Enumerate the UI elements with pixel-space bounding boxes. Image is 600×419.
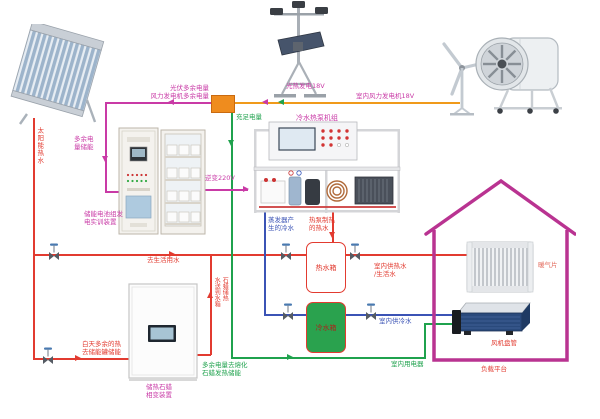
wind-source-fan (474, 28, 566, 118)
arrow-left-icon (262, 99, 268, 105)
wire-inverter-220v (204, 189, 248, 191)
label-indoor-cold-supply: 室内供冷水 (379, 318, 412, 326)
radiator (465, 240, 535, 299)
cold-water-tank-label: 冷水箱 (316, 323, 337, 333)
valve-icon (41, 347, 55, 365)
pipe-paraffin-to-tank (210, 254, 212, 355)
arrow-down-icon (329, 232, 335, 238)
label-fan-coil: 风机盘管 (491, 340, 517, 348)
label-to-domestic-water: 去生活用水 (147, 257, 180, 265)
valve-icon (348, 243, 362, 261)
arrow-right-icon (75, 355, 81, 361)
label-load-platform: 负载平台 (481, 366, 507, 374)
hot-water-tank-label: 热水箱 (316, 263, 337, 273)
label-solar-hot-water: 太阳能热水 (35, 127, 43, 165)
heat-pump-bench (251, 119, 403, 220)
arrow-left-icon (278, 99, 284, 105)
hot-water-tank: 热水箱 (306, 242, 346, 293)
label-day-surplus-heat: 白天多余的热 去储能罐储能 (82, 341, 121, 357)
paraffin-storage-cabinet (128, 283, 198, 386)
arrow-down-icon (228, 140, 234, 146)
arrow-right-icon (243, 186, 249, 192)
label-inverter-220v: 逆变220V (205, 175, 235, 183)
label-paraffin-cabinet: 储热石蜡 相变装置 (146, 384, 172, 400)
label-water-to-tank: 水送到水箱 (213, 277, 220, 307)
label-radiator: 暖气片 (538, 262, 558, 270)
label-heat-pump-unit: 冷水热泵机组 (296, 114, 338, 122)
label-sufficient-power: 充足电量 (236, 114, 262, 122)
valve-icon (281, 303, 295, 321)
label-indoor-hot-supply: 室内供热水 /生活水 (374, 263, 407, 279)
valve-icon (47, 243, 61, 261)
wire-surplus-to-storage-h (105, 102, 212, 104)
pipe-evaporator-cold-down (264, 212, 266, 316)
label-surplus-storage: 多余电 量储能 (74, 136, 94, 152)
battery-storage-cabinets (118, 124, 206, 244)
power-junction-box (211, 95, 235, 113)
label-battery-cabinet: 储能电池组发 电实训装置 (84, 211, 123, 227)
label-indoor-appliances: 室内用电器 (391, 361, 424, 369)
wire-sufficient-power-down (231, 111, 233, 359)
arrow-right-icon (287, 354, 293, 360)
cold-water-tank: 冷水箱 (306, 302, 346, 353)
label-evaporator-cold: 蒸发器产 生的冷水 (268, 217, 294, 233)
solar-collector (5, 24, 110, 130)
label-indoor-wind-gen: 室内风力发电机18V (356, 93, 414, 101)
fan-coil-unit (450, 297, 534, 345)
label-heatpump-hot: 热泵制热 的热水 (309, 217, 335, 233)
pipe-paraffin-outlet (196, 354, 211, 356)
label-surplus-power: 光伏多余电量 风力发电机多余电量 (147, 85, 209, 101)
arrow-down-icon (102, 156, 108, 162)
label-solar-thermal-gen: 光热发电18V (286, 83, 325, 91)
valve-icon (364, 303, 378, 321)
label-surplus-to-melt: 多余电量去熔化 石蜡发热储能 (202, 362, 248, 378)
system-schematic: 热水箱 冷水箱 太阳能热水 (0, 0, 600, 419)
label-paraffin-heat-store: 石蜡储热 (221, 277, 228, 301)
valve-icon (279, 243, 293, 261)
wire-indoor-appliances (231, 357, 426, 359)
